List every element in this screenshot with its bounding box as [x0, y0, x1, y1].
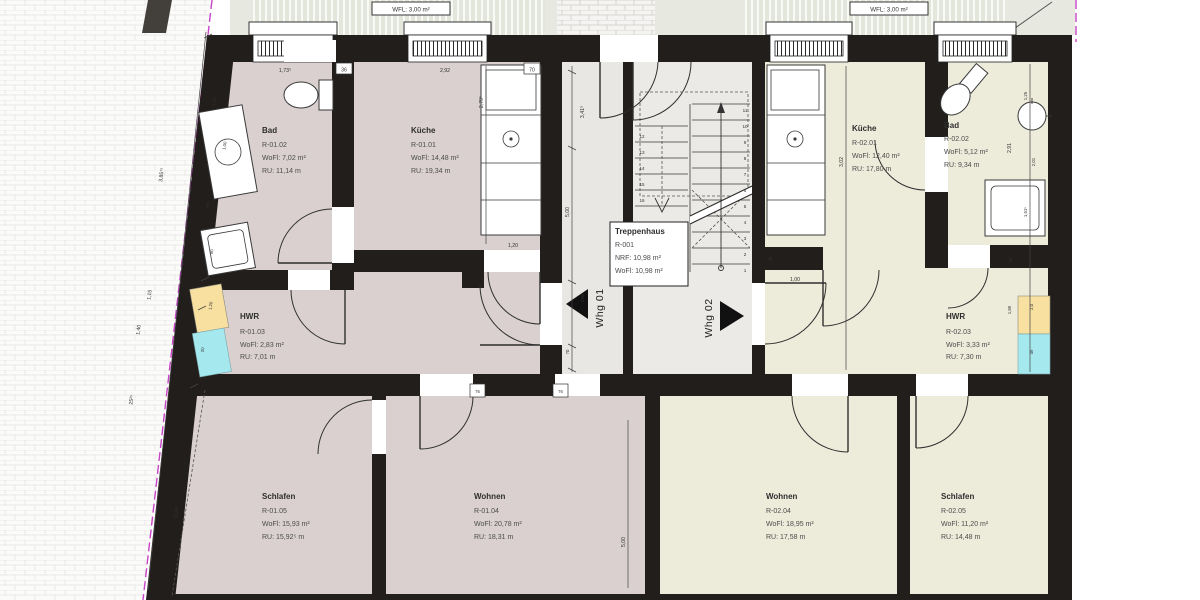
- svg-text:WoFl: 3,33 m²: WoFl: 3,33 m²: [946, 342, 990, 349]
- stair-step-number: 10: [742, 124, 748, 129]
- svg-text:RU: 11,14 m: RU: 11,14 m: [262, 168, 301, 175]
- floor-schlafen2: [910, 396, 1048, 600]
- stair-step-number: 7: [744, 172, 747, 177]
- dim-label: 36: [341, 68, 347, 74]
- dim-label: 3,41⁵: [580, 106, 586, 118]
- stair-step-number: 1: [744, 268, 747, 273]
- svg-text:WoFl: 20,78 m²: WoFl: 20,78 m²: [474, 521, 522, 528]
- dim-label: 1,15: [146, 289, 153, 300]
- svg-text:R-01.03: R-01.03: [240, 329, 265, 336]
- balcony-right-label: WFL: 3,00 m²: [870, 7, 907, 14]
- balcony-left-label: WFL: 3,00 m²: [392, 7, 429, 14]
- svg-text:R-02.05: R-02.05: [941, 508, 966, 515]
- dim-label: 3,02: [839, 157, 845, 167]
- radiator: [943, 41, 1007, 56]
- wall-wohnen2-schlafen2: [897, 396, 910, 600]
- svg-text:WoFl: 14,48 m²: WoFl: 14,48 m²: [411, 155, 459, 162]
- dim-label: 49: [1029, 349, 1034, 354]
- window-3: [766, 22, 852, 62]
- wall-kueche2-bad2-b: [925, 192, 948, 245]
- dim-label: 5,00: [621, 537, 627, 547]
- svg-text:R-02.04: R-02.04: [766, 508, 791, 515]
- svg-text:RU: 18,31 m: RU: 18,31 m: [474, 534, 513, 541]
- svg-text:RU: 15,92⁵ m: RU: 15,92⁵ m: [262, 534, 304, 541]
- svg-text:RU: 14,48 m: RU: 14,48 m: [941, 534, 980, 541]
- svg-text:Küche: Küche: [852, 124, 877, 133]
- wall-right: [1048, 35, 1072, 600]
- dim-label: 40: [768, 256, 773, 261]
- dim-label: 1,89: [1007, 305, 1012, 314]
- svg-text:WoFl: 10,98 m²: WoFl: 10,98 m²: [615, 268, 663, 275]
- dim-label: 76: [475, 389, 480, 394]
- svg-text:HWR: HWR: [240, 312, 259, 321]
- radiator: [413, 41, 482, 56]
- stair-step-number: 3: [744, 236, 747, 241]
- shower-2-icon: [985, 180, 1045, 236]
- dim-label: 1,73⁵: [279, 68, 291, 74]
- svg-text:WoFl: 15,93 m²: WoFl: 15,93 m²: [262, 521, 310, 528]
- svg-text:RU: 9,34 m: RU: 9,34 m: [944, 162, 980, 169]
- svg-text:HWR: HWR: [946, 312, 965, 321]
- dim-label: 1,40: [135, 324, 142, 335]
- svg-text:WoFl: 2,83 m²: WoFl: 2,83 m²: [240, 342, 284, 349]
- svg-text:RU: 7,01 m: RU: 7,01 m: [240, 354, 276, 361]
- svg-text:Schlafen: Schlafen: [941, 492, 974, 501]
- svg-text:WoFl: 12,40 m²: WoFl: 12,40 m²: [852, 153, 900, 160]
- svg-text:R-02.02: R-02.02: [944, 136, 969, 143]
- svg-text:Wohnen: Wohnen: [766, 492, 798, 501]
- window-2: [404, 22, 491, 62]
- svg-text:Treppenhaus: Treppenhaus: [615, 227, 665, 236]
- stair-step-number: 16: [639, 198, 645, 203]
- whg-01-label: Whg 01: [594, 288, 606, 327]
- floor-plan-svg: WFL: 3,00 m² WFL: 3,00 m²: [0, 0, 1200, 600]
- insulation-strips-hwr2: [1018, 296, 1050, 374]
- stair-step-number: 11: [743, 108, 748, 113]
- floor-wohnen1: [386, 396, 645, 600]
- dim-label: 1,20: [508, 243, 518, 249]
- dim-label: 1,25: [1023, 91, 1028, 100]
- svg-text:R-01.04: R-01.04: [474, 508, 499, 515]
- wall-bottom-cut: [173, 594, 1072, 600]
- svg-text:WoFl: 11,20 m²: WoFl: 11,20 m²: [941, 521, 989, 528]
- wall-apartment-divider: [645, 396, 660, 600]
- wall-bad1-kueche1-a: [332, 62, 354, 207]
- wall-bad1-bottom: [209, 270, 354, 290]
- svg-text:Schlafen: Schlafen: [262, 492, 295, 501]
- svg-text:WoFl: 5,12 m²: WoFl: 5,12 m²: [944, 149, 988, 156]
- svg-text:R-001: R-001: [615, 242, 634, 249]
- kitchen-counter-1: [481, 65, 541, 235]
- room-treppenhaus: Treppenhaus R-001 NRF: 10,98 m² WoFl: 10…: [610, 222, 688, 286]
- svg-text:R-02.01: R-02.01: [852, 140, 877, 147]
- dim-label: 76: [558, 389, 563, 394]
- svg-text:R-01.01: R-01.01: [411, 142, 436, 149]
- stair-step-number: 2: [744, 252, 747, 257]
- stair-step-number: 4: [744, 220, 747, 225]
- svg-text:Küche: Küche: [411, 126, 436, 135]
- svg-text:R-01.05: R-01.05: [262, 508, 287, 515]
- dim-label: 2,92: [440, 68, 450, 74]
- window-4: [934, 22, 1016, 62]
- stair-step-number: 15: [639, 182, 645, 187]
- svg-text:Bad: Bad: [262, 126, 277, 135]
- svg-text:Wohnen: Wohnen: [474, 492, 506, 501]
- dim-label: 2,01: [1031, 157, 1036, 166]
- stair-step-number: 6: [744, 188, 747, 193]
- svg-text:WoFl: 18,95 m²: WoFl: 18,95 m²: [766, 521, 814, 528]
- dim-label: 25²⁵: [128, 395, 135, 405]
- dim-label: 1,00: [790, 277, 800, 283]
- dim-label: 2,0: [1029, 303, 1034, 310]
- dim-label: 70: [529, 68, 535, 74]
- entrance-landing: [557, 0, 655, 35]
- dim-label: 1,61⁵: [1023, 207, 1028, 217]
- svg-text:Bad: Bad: [944, 121, 959, 130]
- wall-kueche1-notch: [462, 250, 484, 288]
- stair-step-number: 9: [744, 140, 747, 145]
- kitchen-counter-2: [767, 65, 825, 235]
- dim-label: 20: [1008, 257, 1013, 262]
- floor-plan-page: WFL: 3,00 m² WFL: 3,00 m²: [0, 0, 1200, 600]
- stair-step-number: 5: [744, 204, 747, 209]
- svg-text:RU: 19,34 m: RU: 19,34 m: [411, 168, 450, 175]
- wall-kueche2-stub: [765, 247, 823, 270]
- svg-text:R-02.03: R-02.03: [946, 329, 971, 336]
- dim-label: 70: [565, 349, 570, 354]
- dim-label: 2,79⁵: [479, 96, 485, 108]
- stair-step-number: 14: [639, 166, 645, 171]
- svg-text:R-01.02: R-01.02: [262, 142, 287, 149]
- svg-text:RU: 7,30 m: RU: 7,30 m: [946, 354, 982, 361]
- wall-bad2-bottom: [925, 245, 1072, 268]
- stair-step-number: 8: [744, 156, 747, 161]
- svg-text:WoFl: 7,02 m²: WoFl: 7,02 m²: [262, 155, 306, 162]
- dim-label: 2,01: [580, 293, 585, 302]
- stair-step-number: 12: [639, 134, 645, 139]
- radiator: [775, 41, 843, 56]
- floors: [173, 62, 1048, 600]
- dim-label: 2,91: [1007, 143, 1013, 153]
- stair-step-number: 13: [639, 150, 645, 155]
- dim-label: 5,00: [565, 207, 571, 217]
- svg-text:RU: 17,80 m: RU: 17,80 m: [852, 166, 891, 173]
- whg-02-label: Whg 02: [703, 298, 715, 337]
- svg-text:NRF: 10,98 m²: NRF: 10,98 m²: [615, 255, 662, 262]
- svg-text:RU: 17,58 m: RU: 17,58 m: [766, 534, 805, 541]
